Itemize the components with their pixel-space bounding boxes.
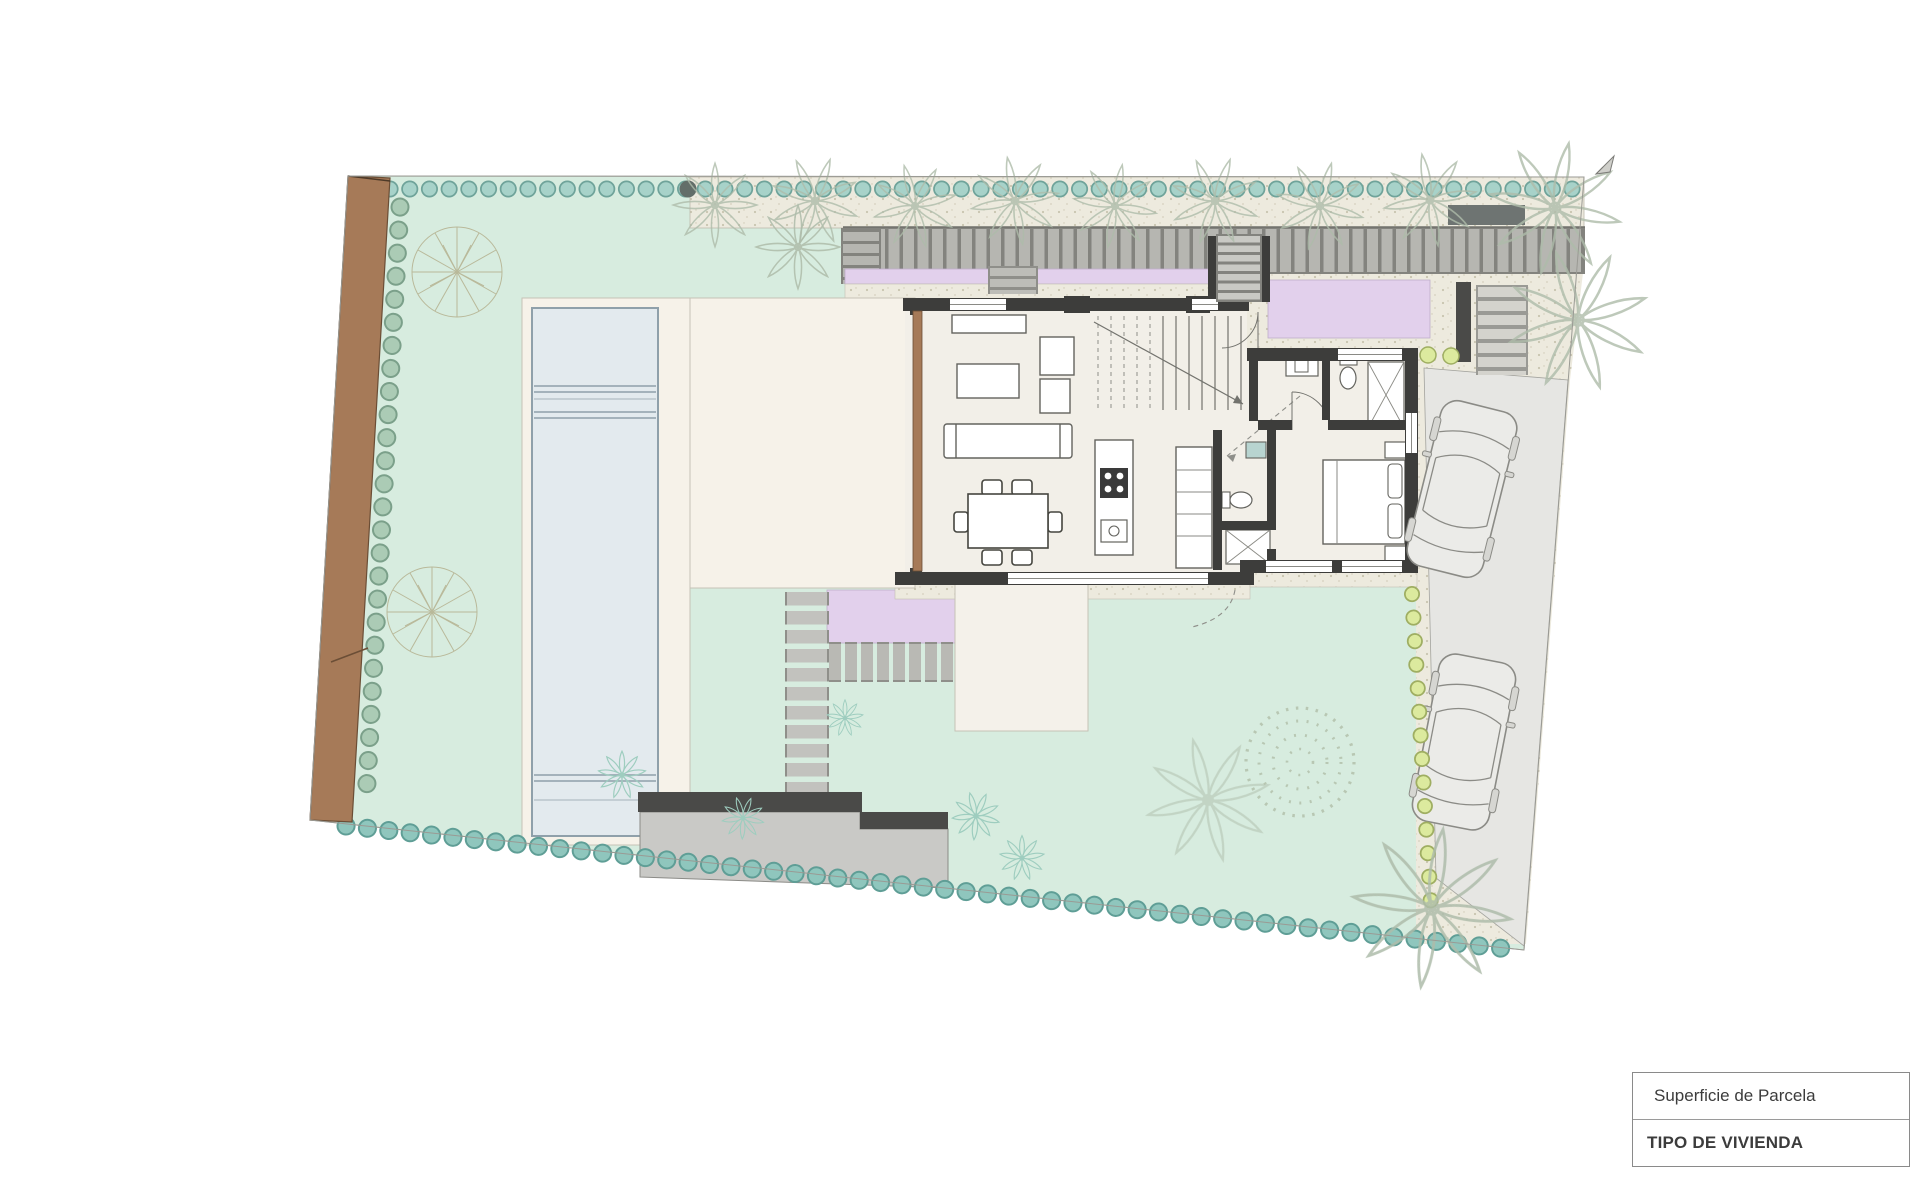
toilet [1230, 492, 1252, 508]
site-plan-screenshot: Superficie de Parcela TIPO DE VIVIENDA [0, 0, 1920, 1200]
toilet [1340, 367, 1356, 389]
daybed [957, 364, 1019, 398]
dining-table [968, 494, 1048, 548]
sofa-top [952, 315, 1026, 333]
pillow [1388, 504, 1402, 538]
pergola-strip-north [845, 269, 1245, 284]
label-tipo-vivienda: TIPO DE VIVIENDA [1647, 1133, 1803, 1153]
lower-terrace [955, 584, 1088, 731]
tree-radial [387, 567, 477, 657]
washer [1246, 442, 1266, 458]
pergola-entry-canopy [1268, 280, 1430, 338]
timber-slider-wall [913, 311, 922, 571]
nightstand [1385, 442, 1407, 458]
kitchen-cabinets [1176, 447, 1212, 568]
entry-wall [1456, 282, 1471, 362]
bin-store [1448, 205, 1525, 225]
label-superficie: Superficie de Parcela [1654, 1086, 1816, 1106]
terrace-deck [690, 298, 915, 588]
tree-radial [412, 227, 502, 317]
title-block-row-dwelling-type: TIPO DE VIVIENDA [1633, 1120, 1909, 1166]
swimming-pool [532, 308, 658, 836]
sofa-long [944, 424, 1072, 458]
armchair [1040, 337, 1074, 375]
title-block: Superficie de Parcela TIPO DE VIVIENDA [1632, 1072, 1910, 1167]
armchair [1040, 379, 1070, 413]
title-block-row-parcel-area: Superficie de Parcela [1633, 1073, 1909, 1120]
bedroom [1323, 442, 1407, 562]
villa-site-plan-drawing [0, 0, 1920, 1200]
pillow [1388, 464, 1402, 498]
nightstand [1385, 546, 1407, 562]
stove [1100, 468, 1128, 498]
